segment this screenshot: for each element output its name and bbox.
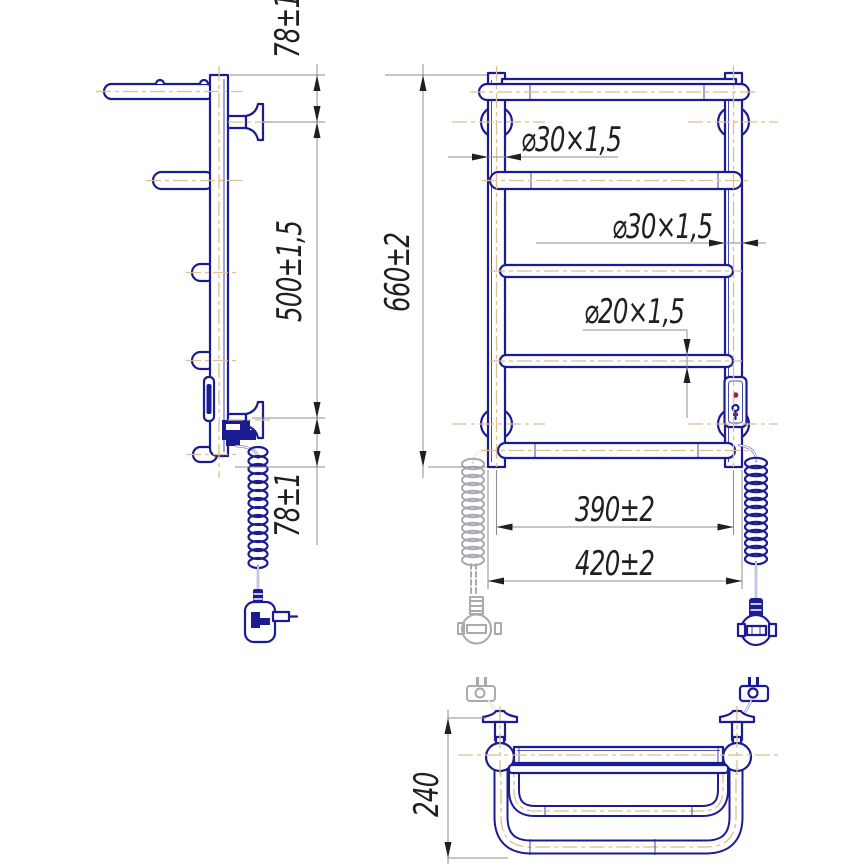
control-switch-side-slider (207, 384, 212, 414)
power-plug-left-phantom (458, 597, 501, 644)
dim-label-shelf-depth: 240 (407, 772, 446, 817)
dim-label-overall-height: 660±2 (378, 233, 417, 312)
dim-left-tube-dia: ⌀30×1,5 (448, 120, 621, 160)
dim-label-right-tube: ⌀30×1,5 (612, 207, 712, 246)
power-plug-side (245, 589, 297, 642)
dim-label-bottom-offset: 78±1 (268, 473, 307, 537)
dim-label-top-offset: 78±1 (268, 0, 307, 58)
control-switch (725, 377, 747, 427)
technical-drawing: 78±1 500±1,5 78±1 660±2 ⌀30×1,5 (0, 0, 868, 868)
dim-label-rung-tube: ⌀20×1,5 (584, 292, 684, 331)
dim-label-axis-width: 390±2 (575, 490, 654, 529)
dim-axis-width: 390±2 (497, 490, 734, 530)
power-cord-right (739, 445, 767, 600)
dim-label-bracket-span: 500±1,5 (270, 221, 309, 322)
power-plug-right (738, 598, 776, 645)
dim-bottom-offset: 78±1 (268, 418, 320, 537)
top-plug-right (740, 677, 768, 717)
shelf-rung-bump (200, 80, 208, 84)
rung-near-wall (509, 765, 728, 773)
top-plug-left-phantom (467, 677, 499, 716)
dim-shelf-depth: 240 (407, 710, 451, 864)
dim-overall-width: 420±2 (488, 544, 742, 584)
shelf-rung-bump (156, 80, 164, 84)
dim-label-overall-width: 420±2 (575, 544, 654, 583)
dim-bracket-span: 500±1,5 (270, 122, 320, 418)
dim-overall-height: 660±2 (378, 64, 426, 478)
dim-label-left-tube: ⌀30×1,5 (521, 120, 621, 159)
heater-housing-slot (226, 424, 240, 430)
top-view (458, 677, 780, 855)
side-view (96, 66, 297, 642)
power-cord-coil-side (236, 446, 268, 592)
